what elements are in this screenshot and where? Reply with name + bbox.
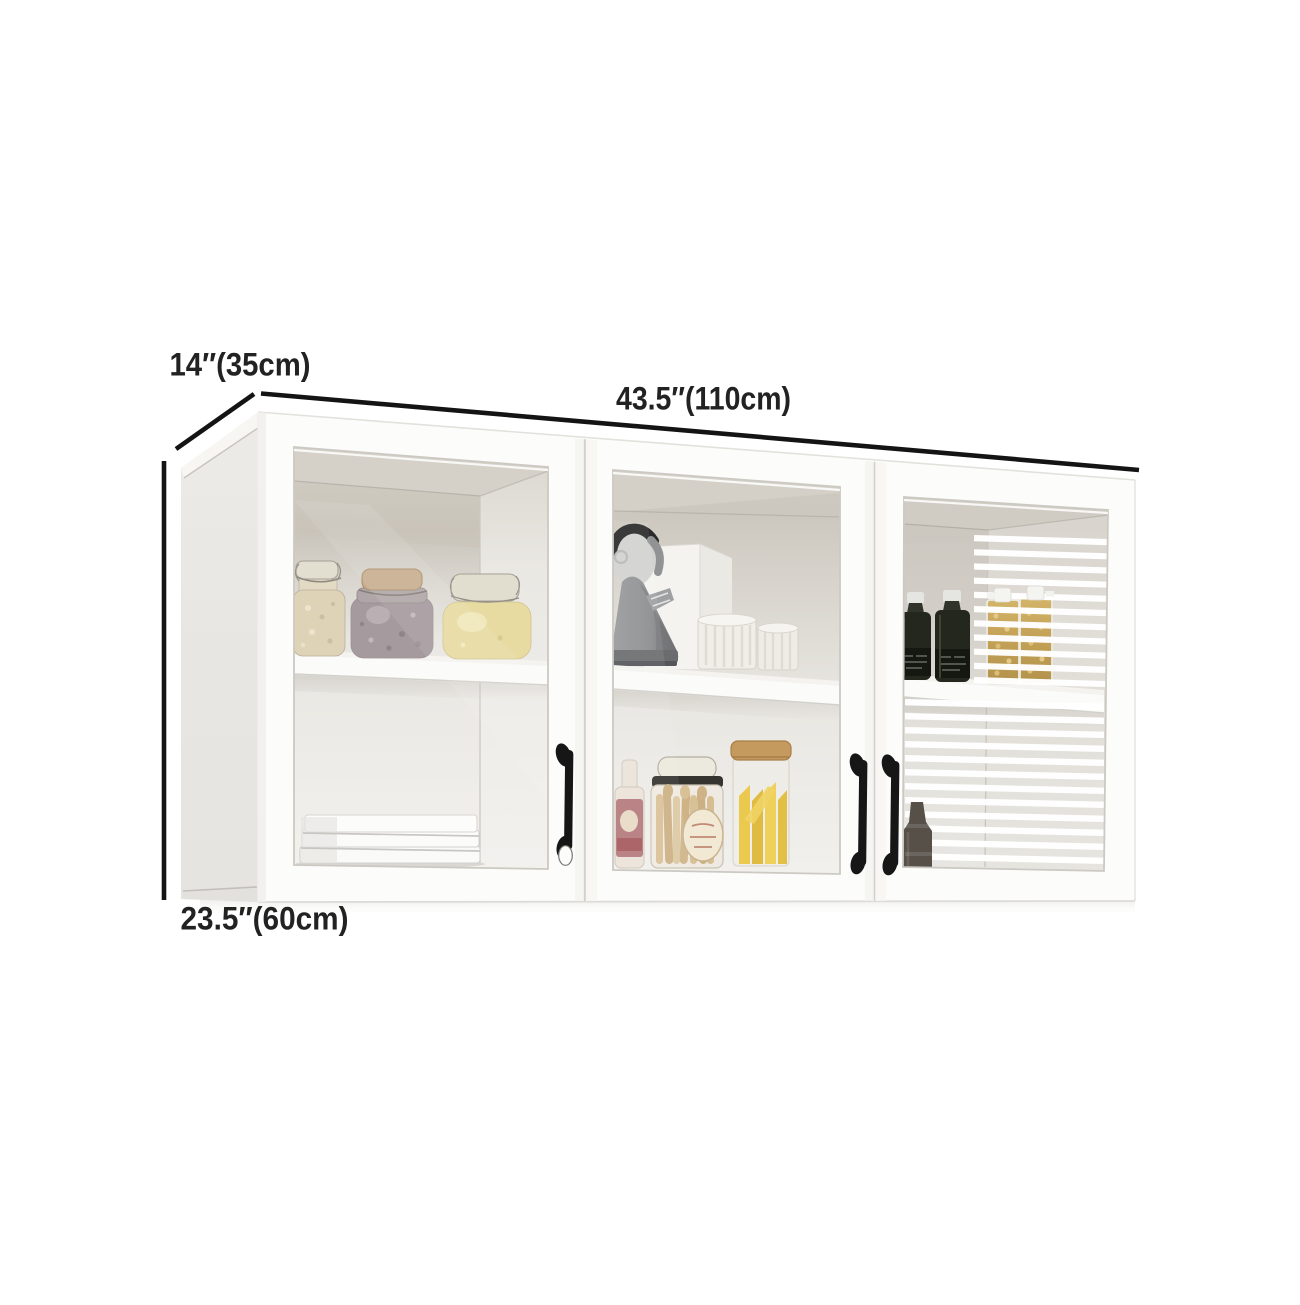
svg-text:43.5″(110cm): 43.5″(110cm) <box>616 381 791 417</box>
svg-text:14″(35cm): 14″(35cm) <box>170 347 311 383</box>
svg-text:23.5″(60cm): 23.5″(60cm) <box>181 901 349 937</box>
